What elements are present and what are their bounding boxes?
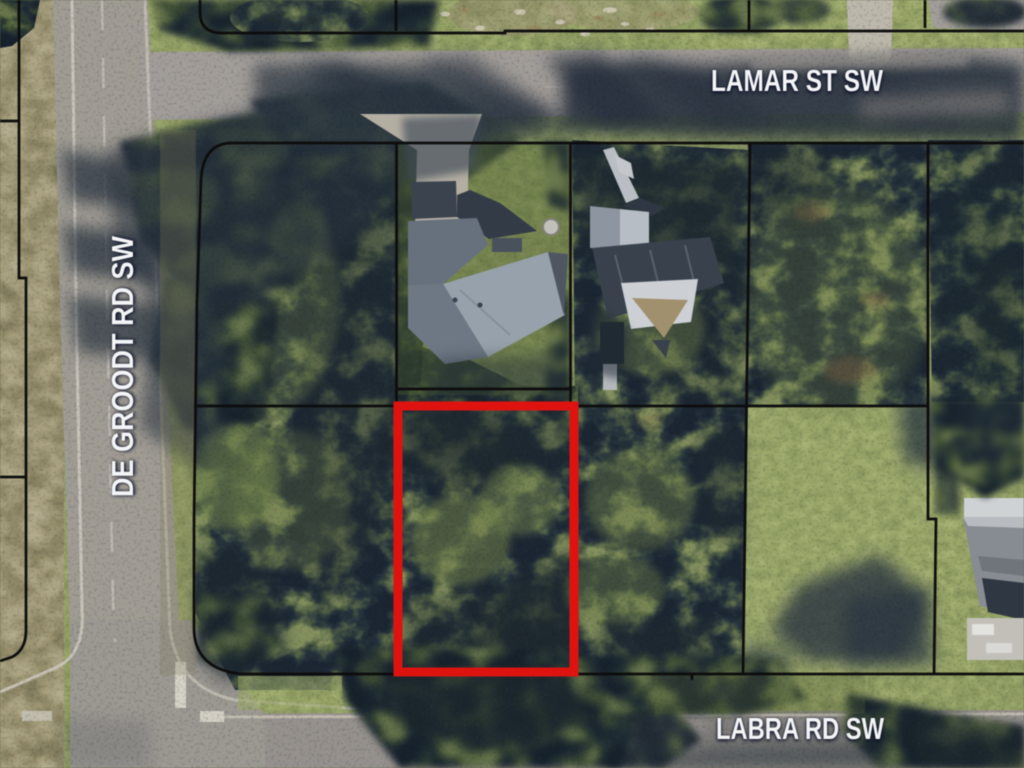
svg-text:LABRA RD SW: LABRA RD SW bbox=[716, 711, 885, 746]
svg-text:LAMAR ST SW: LAMAR ST SW bbox=[711, 63, 884, 98]
svg-text:DE GROODT RD SW: DE GROODT RD SW bbox=[105, 235, 140, 497]
